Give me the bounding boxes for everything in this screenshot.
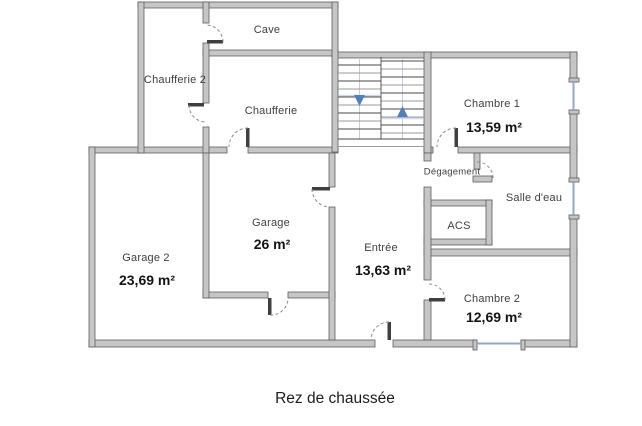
room-label-degagement: Dégagement [424,167,480,178]
door-arc-front-entrance [371,322,389,340]
room-area-garage: 26 m² [254,236,291,252]
room-area-entree: 13,63 m² [355,262,411,278]
door-leaf-chaufferie2 [188,103,204,107]
door-leaf-chambre2 [429,298,445,302]
floor-title: Rez de chaussée [275,390,395,408]
door-leaf-cave [207,40,223,44]
room-label-chambre1: Chambre 1 [464,98,520,110]
room-area-chambre2: 12,69 m² [466,309,522,325]
door-arc-chaufferie2 [189,105,206,122]
room-label-chaufferie: Chaufferie [245,105,298,117]
room-label-garage: Garage [252,217,290,229]
room-area-garage2: 23,69 m² [119,272,175,288]
room-label-entree: Entrée [364,242,398,254]
door-arc-cave [206,25,223,42]
door-leaf-chaufferie-garage [246,128,250,147]
room-label-garage2: Garage 2 [122,252,169,264]
door-leaf-garage-bottom [268,298,272,315]
room-label-acs: ACS [447,220,470,232]
door-leaf-front-entrance [388,322,392,340]
floor-plan-page: Cave Chaufferie 2 Chaufferie Chambre 1 1… [0,0,642,426]
room-label-salle-deau: Salle d'eau [506,192,562,204]
door-leaf-garage-entree [312,187,330,191]
room-area-chambre1: 13,59 m² [466,119,522,135]
door-arc-garage-entree [312,189,330,207]
stairs-down-arrow-icon [354,95,365,106]
room-label-cave: Cave [254,24,280,36]
door-leaf-chambre1 [455,128,459,147]
door-arc-chambre1 [437,128,456,147]
room-label-chaufferie2: Chaufferie 2 [144,74,206,86]
stairs-up-arrow-icon [397,106,408,117]
door-arc-chaufferie-garage [229,128,248,147]
staircase [338,57,424,147]
door-arc-garage-bottom [270,298,288,315]
floor-plan-drawing [0,0,642,426]
room-label-chambre2: Chambre 2 [464,293,520,305]
door-arc-chambre2 [429,284,445,300]
